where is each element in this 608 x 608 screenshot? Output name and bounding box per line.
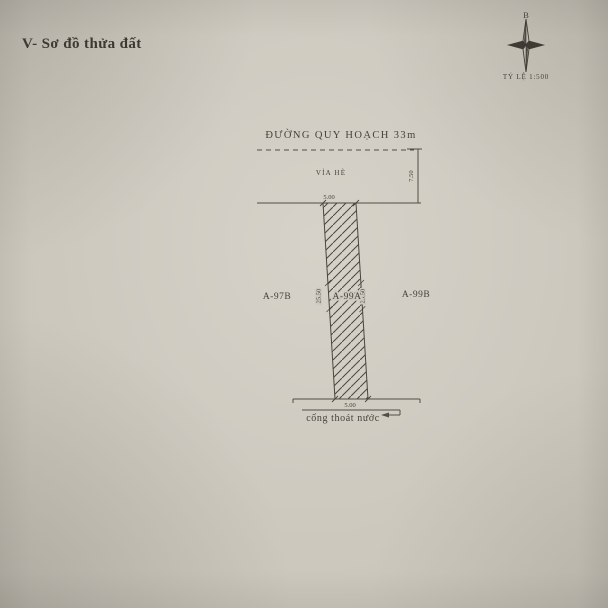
sidewalk-label: vỉa hè	[316, 169, 346, 177]
scale-label: TỶ LỆ 1:500	[503, 73, 549, 81]
parcel-label-left: A-97B	[263, 292, 291, 302]
parcel-sketch: B TỶ LỆ 1:500 ĐƯỜNG QUY HOẠCH 33m 7.50 v…	[0, 0, 608, 608]
sidewalk-depth-value: 7.50	[408, 170, 415, 181]
leader-arrow-icon	[381, 413, 389, 418]
front-width-value: 5.00	[323, 194, 334, 201]
drain-callout: cống thoát nước	[302, 410, 400, 424]
road-label: ĐƯỜNG QUY HOẠCH 33m	[265, 129, 416, 141]
compass-rose-icon: B	[508, 10, 544, 72]
parcel-label-right: A-99B	[402, 290, 430, 300]
sidewalk-depth-dimension: 7.50	[407, 149, 422, 203]
compass-north-label: B	[523, 10, 529, 20]
left-depth-value: 25.50	[316, 289, 323, 304]
scanned-document-page: V- Sơ đồ thửa đất B TỶ LỆ 1:500 ĐƯỜNG QU…	[0, 0, 608, 608]
parcel-label-center: A-99A	[333, 292, 362, 302]
drain-label: cống thoát nước	[306, 413, 380, 424]
rear-width-value: 5.00	[344, 402, 355, 409]
